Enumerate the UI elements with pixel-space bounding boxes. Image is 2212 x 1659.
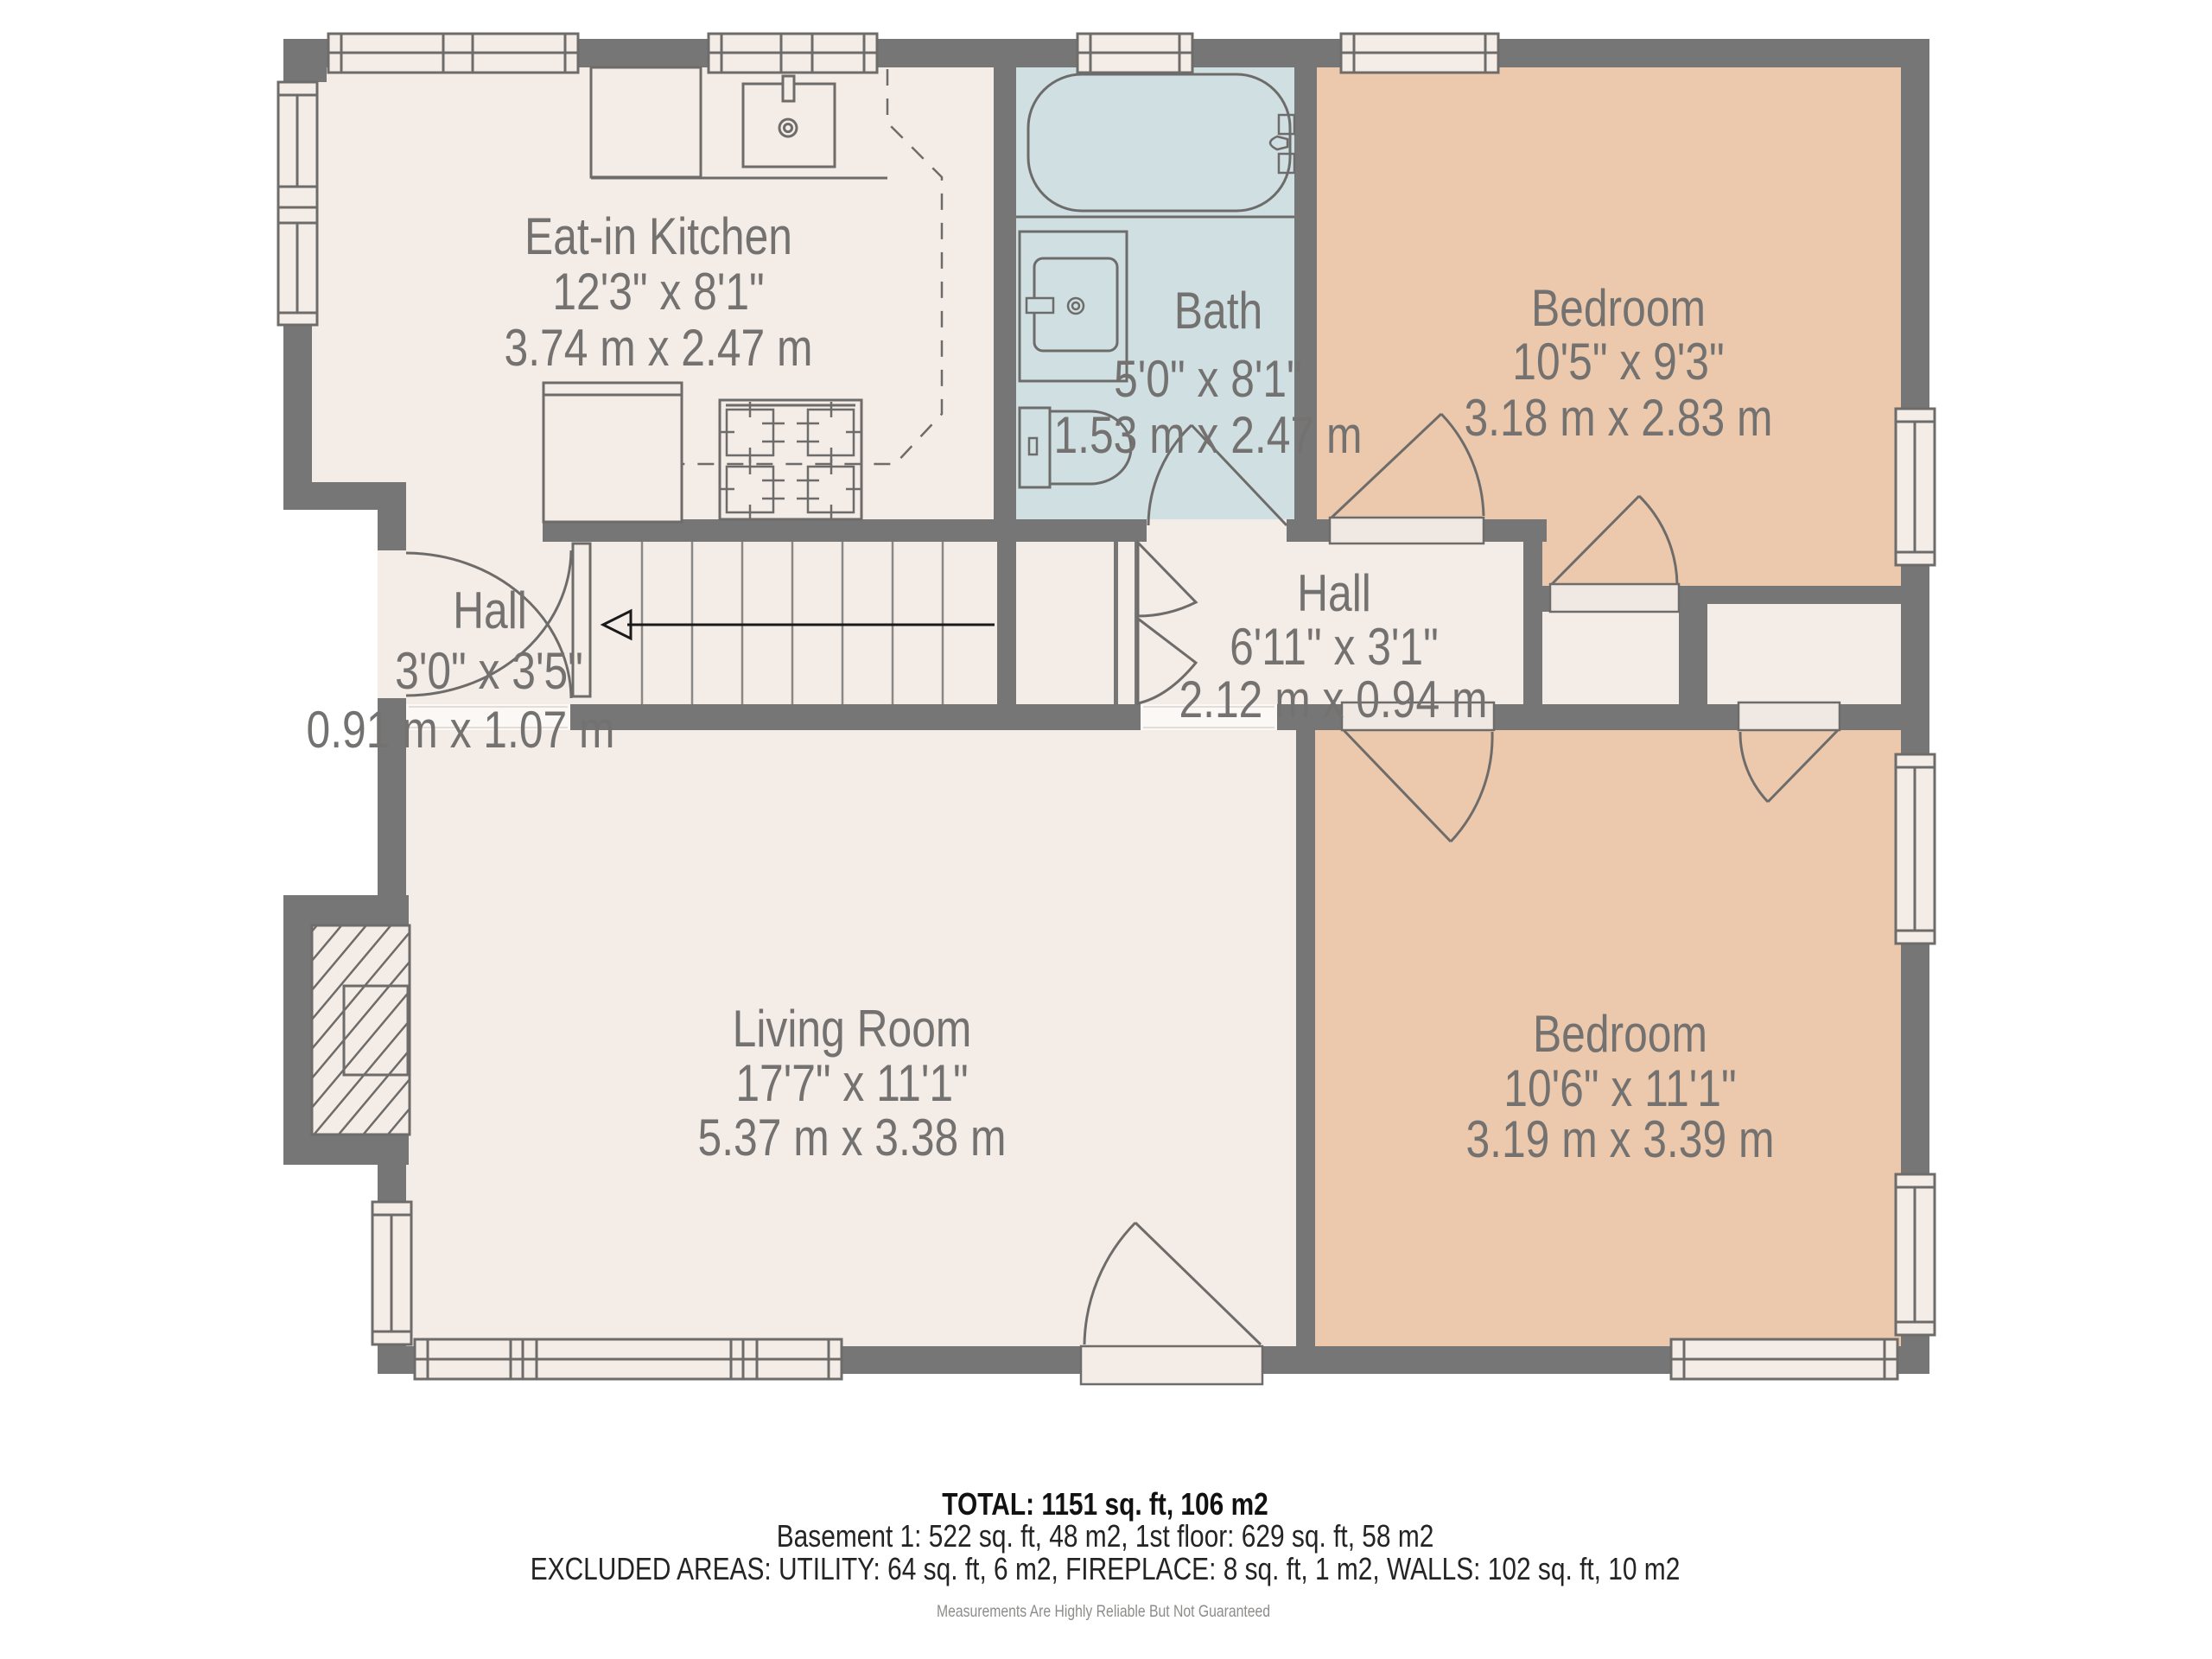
svg-text:3.18 m x 2.83 m: 3.18 m x 2.83 m [1464,389,1772,447]
svg-text:5'0" x 8'1": 5'0" x 8'1" [1114,350,1302,408]
svg-text:TOTAL: 1151 sq. ft, 106 m2: TOTAL: 1151 sq. ft, 106 m2 [942,1487,1268,1522]
svg-text:3.19 m x 3.39 m: 3.19 m x 3.39 m [1465,1110,1774,1168]
svg-text:Bedroom: Bedroom [1533,1005,1707,1063]
svg-text:10'6" x 11'1": 10'6" x 11'1" [1503,1059,1736,1117]
svg-text:Bedroom: Bedroom [1531,279,1706,337]
svg-text:Bath: Bath [1174,282,1262,340]
svg-text:3'0" x 3'5": 3'0" x 3'5" [395,642,583,700]
svg-text:3.74 m x 2.47 m: 3.74 m x 2.47 m [505,319,813,377]
svg-text:1.53 m x 2.47 m: 1.53 m x 2.47 m [1053,406,1362,464]
svg-text:Hall: Hall [453,582,527,639]
svg-text:6'11" x 3'1": 6'11" x 3'1" [1230,618,1439,676]
svg-text:17'7" x 11'1": 17'7" x 11'1" [735,1054,968,1112]
svg-text:0.91 m x 1.07 m: 0.91 m x 1.07 m [307,701,615,759]
svg-text:10'5" x 9'3": 10'5" x 9'3" [1512,333,1724,391]
svg-text:Eat-in Kitchen: Eat-in Kitchen [524,207,792,265]
svg-text:Basement 1: 522 sq. ft, 48 m2,: Basement 1: 522 sq. ft, 48 m2, 1st floor… [777,1519,1434,1554]
svg-text:Living Room: Living Room [733,1000,972,1058]
svg-text:Hall: Hall [1297,564,1371,622]
svg-text:Measurements Are Highly Reliab: Measurements Are Highly Reliable But Not… [937,1602,1270,1621]
svg-text:2.12 m x 0.94 m: 2.12 m x 0.94 m [1179,671,1487,728]
svg-text:12'3" x 8'1": 12'3" x 8'1" [552,263,764,321]
svg-text:5.37 m x 3.38 m: 5.37 m x 3.38 m [698,1109,1007,1166]
svg-text:EXCLUDED AREAS: UTILITY: 64 sq: EXCLUDED AREAS: UTILITY: 64 sq. ft, 6 m2… [531,1552,1681,1586]
